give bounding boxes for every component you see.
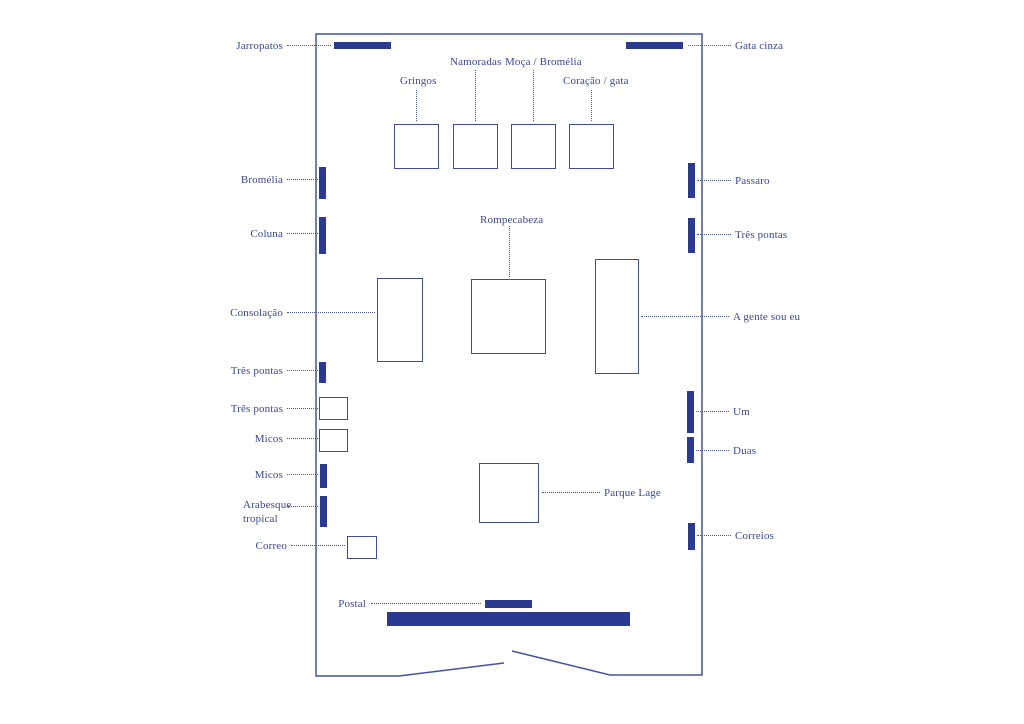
leader-postal bbox=[371, 603, 481, 604]
leader-tres-pontas-2 bbox=[287, 408, 318, 409]
leader-arabesque bbox=[288, 506, 318, 507]
pedestal-rompecabeza bbox=[471, 279, 546, 354]
label-jarropatos: Jarropatos bbox=[236, 39, 283, 53]
leader-duas bbox=[696, 450, 729, 451]
leader-rompecabeza bbox=[509, 226, 510, 277]
label-tres-pontas-right: Três pontas bbox=[735, 228, 787, 242]
wall-piece-coluna bbox=[319, 217, 326, 254]
room-wall-path bbox=[316, 34, 702, 676]
label-arabesque-tropical: Arabesque tropical bbox=[243, 498, 291, 526]
wall-piece-correios bbox=[688, 523, 695, 550]
label-correo: Correo bbox=[256, 539, 287, 553]
label-coracao-gata: Coração / gata bbox=[563, 74, 629, 88]
label-consolacao: Consolação bbox=[230, 306, 283, 320]
leader-micos-2 bbox=[287, 474, 318, 475]
leader-tres-pontas-right bbox=[697, 234, 731, 235]
label-namoradas: Namoradas bbox=[450, 55, 501, 69]
pedestal-micos-1 bbox=[319, 429, 348, 452]
leader-coluna bbox=[287, 233, 318, 234]
leader-tres-pontas-1 bbox=[287, 370, 318, 371]
leader-passaro bbox=[697, 180, 731, 181]
label-postal: Postal bbox=[338, 597, 366, 611]
leader-correios bbox=[697, 535, 731, 536]
wall-piece-tres-pontas-1 bbox=[319, 362, 326, 383]
label-parque-lage: Parque Lage bbox=[604, 486, 661, 500]
label-tres-pontas-1: Três pontas bbox=[231, 364, 283, 378]
wall-piece-um bbox=[687, 391, 694, 433]
wall-piece-gata-cinza bbox=[626, 42, 683, 49]
label-micos-1: Micos bbox=[255, 432, 283, 446]
leader-bromelia bbox=[287, 179, 318, 180]
pedestal-parque-lage bbox=[479, 463, 539, 523]
leader-jarropatos bbox=[287, 45, 331, 46]
wall-piece-arabesque bbox=[320, 496, 327, 527]
wall-piece-micos-2 bbox=[320, 464, 327, 488]
leader-parque-lage bbox=[542, 492, 600, 493]
floor-plan: JarropatosGata cinzaGringosNamoradasMoça… bbox=[0, 0, 1024, 724]
pedestal-a-gente-sou-eu bbox=[595, 259, 639, 374]
label-micos-2: Micos bbox=[255, 468, 283, 482]
label-tres-pontas-2: Três pontas bbox=[231, 402, 283, 416]
wall-piece-jarropatos bbox=[334, 42, 391, 49]
label-a-gente-sou-eu: A gente sou eu bbox=[733, 310, 800, 324]
leader-um bbox=[696, 411, 729, 412]
leader-consolacao bbox=[287, 312, 375, 313]
label-um: Um bbox=[733, 405, 750, 419]
wall-piece-postal bbox=[485, 600, 532, 608]
pedestal-moca-bromelia bbox=[511, 124, 556, 169]
label-passaro: Passaro bbox=[735, 174, 770, 188]
label-rompecabeza: Rompecabeza bbox=[480, 213, 543, 227]
wall-piece-bottom-large bbox=[387, 612, 630, 626]
label-gata-cinza: Gata cinza bbox=[735, 39, 783, 53]
pedestal-correo bbox=[347, 536, 377, 559]
leader-namoradas bbox=[475, 70, 476, 121]
leader-micos-1 bbox=[287, 438, 318, 439]
leader-a-gente-sou-eu bbox=[641, 316, 729, 317]
pedestal-namoradas bbox=[453, 124, 498, 169]
label-duas: Duas bbox=[733, 444, 756, 458]
label-coluna: Coluna bbox=[250, 227, 283, 241]
leader-coracao-gata bbox=[591, 90, 592, 121]
pedestal-tres-pontas-2 bbox=[319, 397, 348, 420]
leader-moca-bromelia bbox=[533, 70, 534, 121]
pedestal-gringos bbox=[394, 124, 439, 169]
pedestal-consolacao bbox=[377, 278, 423, 362]
wall-piece-passaro bbox=[688, 163, 695, 198]
wall-piece-duas bbox=[687, 437, 694, 463]
label-gringos: Gringos bbox=[400, 74, 437, 88]
label-moca-bromelia: Moça / Bromélia bbox=[505, 55, 582, 69]
label-correios: Correios bbox=[735, 529, 774, 543]
pedestal-coracao-gata bbox=[569, 124, 614, 169]
wall-piece-tres-pontas-right bbox=[688, 218, 695, 253]
label-bromelia: Bromélia bbox=[241, 173, 283, 187]
leader-correo bbox=[291, 545, 345, 546]
leader-gata-cinza bbox=[688, 45, 731, 46]
wall-piece-bromelia bbox=[319, 167, 326, 199]
leader-gringos bbox=[416, 90, 417, 121]
